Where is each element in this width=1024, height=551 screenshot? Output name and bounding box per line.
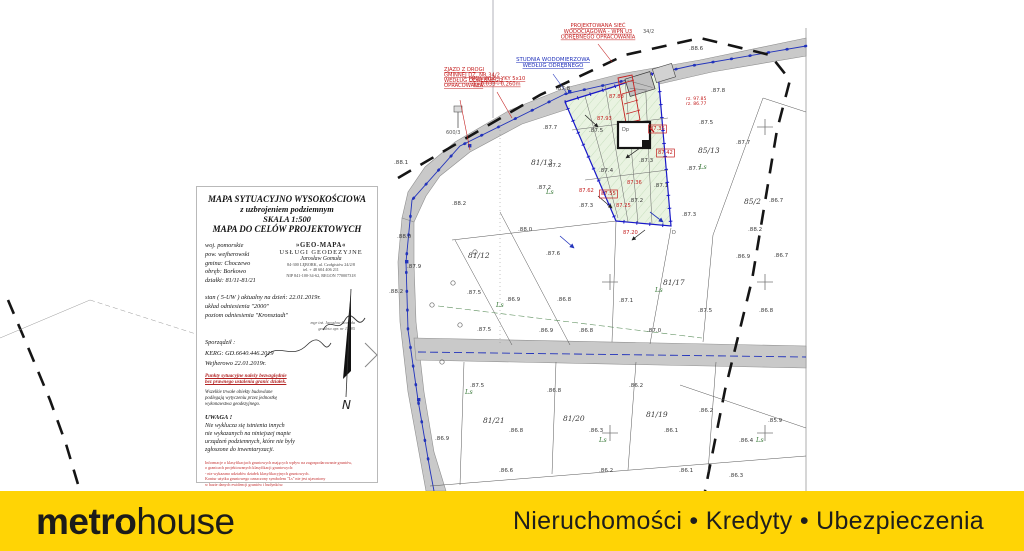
spot-elevation: .87.6 [546,251,561,257]
parcel-number: 81/19 [646,410,668,419]
spot-elevation: .86.3 [729,473,744,479]
spot-elevation: .87.7 [543,125,558,131]
spot-elevation: .86.8 [759,308,774,314]
spot-elevation: .87.8 [556,86,571,92]
spot-elevation: 87.20 [623,230,638,236]
spot-elevation: .88.2 [452,201,466,207]
landuse-label: Ls [598,436,607,444]
spot-elevation: .88.1 [394,160,409,166]
spot-elevation: .88.0 [397,234,412,240]
parcel-number: 81/12 [468,251,490,260]
parcel-number: 81/21 [483,416,505,425]
spot-elevation: .86.9 [435,436,450,442]
spot-elevation: .87.8 [711,88,726,94]
location-info: woj. pomorskiepow. wejherowskigmina: Cho… [205,242,256,286]
spot-elevation: .86.8 [557,297,572,303]
spot-elevation: .87.5 [699,120,714,126]
spot-elevation: 87.55 [601,191,616,197]
spot-elevation: 600/3 [446,130,460,136]
spot-elevation: 87.93 [597,116,612,122]
spot-elevation: .87.5 [589,128,604,134]
spot-elevation: 87.42 [658,150,673,156]
north-label: N [342,398,351,412]
spot-elevation: .85.9 [768,418,783,424]
spot-elevation: 87.25 [616,203,631,209]
spot-elevation: Dp [622,127,629,133]
spot-elevation: .87.3 [639,158,654,164]
parcel-number: 81/17 [663,278,685,287]
spot-elevation: .87.3 [682,212,697,218]
spot-elevation: .86.2 [599,468,613,474]
landuse-boundary [438,306,702,338]
warning-text: Nie wyklucza się istnienia innychnie wyk… [205,423,369,455]
brand-footer: metrohouse Nieruchomości • Kredyty • Ube… [0,491,1024,551]
logo-text-metro: metr [36,501,114,542]
spot-elevation: .86.6 [499,468,514,474]
spot-elevation: 87.36 [627,180,642,186]
map-annotation-line: WEDŁUG ODRĘBNEGO [523,63,584,69]
parcel-number: 81/20 [563,414,585,423]
spot-elevation: .86.9 [539,328,554,334]
spot-elevation: .88.0 [518,227,533,233]
map-title-block: MAPA SYTUACYJNO WYSOKOŚCIOWAz uzbrojenie… [196,186,378,483]
spot-elevation: .86.4 [739,438,754,444]
spot-elevation: .86.1 [679,468,694,474]
spot-elevation: .87.1 [619,298,634,304]
north-arrow: N [329,287,379,417]
road-sign-symbol [454,106,462,128]
spot-elevation: .87.4 [599,168,614,174]
spot-elevation: .87.2 [629,198,643,204]
map-annotation-line: OPRACOWANIA [444,83,484,89]
landuse-label: Ls [698,163,707,171]
parcel-number: 85/13 [698,146,720,155]
map-annotation-line: ODRĘBNEGO OPRACOWANIA [561,35,636,41]
spot-elevation: .86.7 [769,198,784,204]
landuse-label: Ls [755,436,764,444]
spot-elevation: .86.8 [509,428,524,434]
classification-note: Informacje o klasyfikacjach gruntowych m… [205,460,369,487]
spot-elevation: D [672,230,676,236]
metrohouse-logo: metrohouse [36,503,235,540]
spot-elevation: .87.7 [736,140,751,146]
spot-elevation: .86.8 [547,388,562,394]
spot-elevation: .88.2 [748,227,762,233]
spot-elevation: .86.2 [629,383,643,389]
parcel-number: 85/2 [744,197,761,206]
spot-elevation: .86.9 [506,297,521,303]
landuse-label: Ls [464,388,473,396]
landuse-label: Ls [545,188,554,196]
surveyor-stamp: »GEO-MAPA«USŁUGI GEODEZYJNEJarosław Gomu… [273,242,369,286]
spot-elevation: 34/2 [643,29,654,35]
spot-elevation: .87.1 [654,183,669,189]
spot-elevation: .86.2 [699,408,713,414]
spot-elevation: .88.2 [389,289,403,295]
spot-elevation: .87.0 [647,328,662,334]
spot-elevation: .86.1 [664,428,679,434]
map-drawing: PROJEKTOWANA SIEĆWODOCIĄGOWA - WPN U3ODR… [0,0,1024,491]
spot-elevation: .87.5 [698,308,713,314]
spot-elevation: .86.3 [589,428,604,434]
signature-scribble-2 [263,337,333,363]
map-title: MAPA SYTUACYJNO WYSOKOŚCIOWAz uzbrojenie… [205,194,369,235]
spot-elevation: .87.3 [579,203,594,209]
cadastral-map: PROJEKTOWANA SIEĆWODOCIĄGOWA - WPN U3ODR… [0,0,1024,491]
spot-elevation: 87.62 [579,188,594,194]
spot-elevation: .86.9 [736,254,751,260]
spot-elevation: .87.2 [547,163,561,169]
spot-elevation: .86.7 [774,253,789,259]
spot-elevation: .87.5 [477,327,492,333]
spot-elevation: 87.88 [609,94,624,100]
logo-house-icon: o [114,503,136,540]
landuse-label: Ls [654,286,663,294]
logo-text-house: house [136,501,234,542]
spot-elevation: 87.35 [650,126,665,132]
spot-elevation: .88.6 [689,46,704,52]
footer-tagline: Nieruchomości • Kredyty • Ubezpieczenia [513,507,984,536]
spot-elevation: .87.5 [467,290,482,296]
spot-elevation: .86.8 [579,328,594,334]
spot-elevation: .87.9 [407,264,422,270]
landuse-label: Ls [495,301,504,309]
map-annotation-line: rz. 86.77 [686,101,706,107]
